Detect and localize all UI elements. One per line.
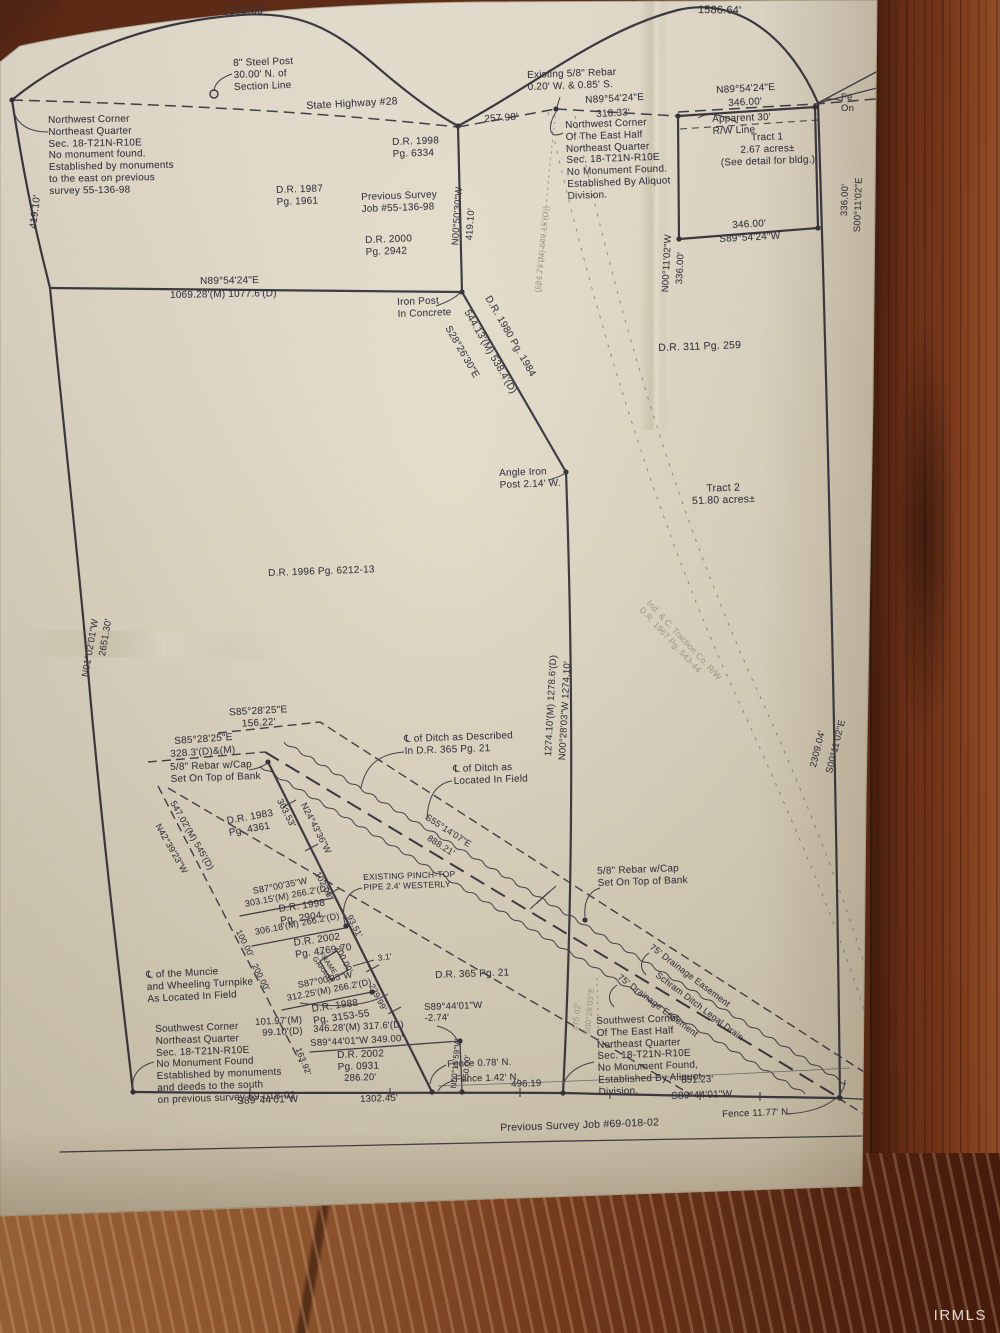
monument-markers	[459, 1089, 464, 1094]
monument-markers	[553, 106, 558, 111]
plat-drawing	[0, 0, 1000, 1333]
monument-markers	[130, 1089, 135, 1094]
monument-markers	[837, 1095, 842, 1100]
irmls-watermark: IRMLS	[934, 1307, 987, 1324]
monument-markers	[812, 104, 817, 109]
monument-markers	[815, 225, 820, 230]
monument-markers	[265, 759, 270, 764]
monument-markers	[675, 113, 680, 118]
monument-markers	[369, 989, 374, 994]
paper-creases	[640, 0, 668, 430]
paper-creases	[0, 630, 280, 658]
paper-sheet	[0, 0, 877, 1216]
monument-markers	[459, 289, 464, 294]
monument-markers	[343, 923, 348, 928]
monument-markers	[457, 1038, 462, 1043]
monument-markers	[429, 1089, 434, 1094]
monument-markers	[455, 123, 460, 128]
survey-plat-photo: 1070.69'1586.64'8" Steel Post 30.00' N. …	[0, 0, 1000, 1333]
monument-markers	[582, 917, 587, 922]
monument-markers	[676, 236, 681, 241]
monument-markers	[9, 97, 14, 102]
monument-markers	[563, 469, 568, 474]
steel-post-symbol	[210, 90, 218, 98]
monument-markers	[560, 1090, 565, 1095]
